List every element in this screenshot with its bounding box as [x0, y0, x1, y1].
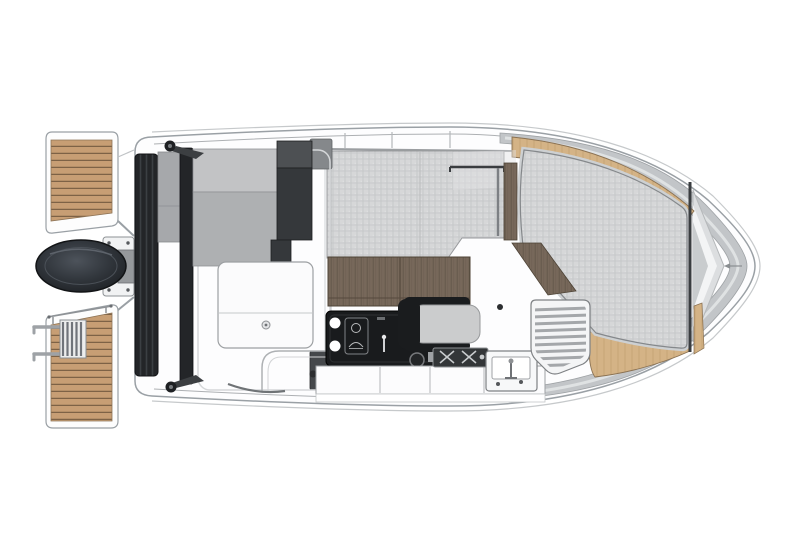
- seat-cushion: [412, 305, 480, 343]
- walnut-strip: [504, 163, 517, 240]
- cup-holder: [410, 353, 424, 367]
- wet-bar-sink: [486, 351, 537, 391]
- boat-deck-plan: [0, 0, 800, 533]
- sink-cupholder: [330, 341, 341, 352]
- swim-platform-bottom: [46, 297, 134, 428]
- boarding-ladder: [34, 320, 86, 360]
- bench-cushion-main: [193, 192, 277, 266]
- bench-bolster-upper: [277, 141, 312, 168]
- grill: [428, 348, 488, 367]
- cockpit-table: [218, 262, 313, 348]
- bench-side-panel: [158, 152, 180, 242]
- bench-front-rail: [180, 148, 193, 384]
- outboard-engine: [36, 237, 134, 296]
- swim-platform-top: [46, 132, 134, 236]
- bench-bolster: [277, 168, 312, 240]
- louvered-hatch: [531, 300, 590, 374]
- windshield-corner-top: [310, 139, 332, 169]
- seat-backrest: [398, 299, 420, 349]
- bench-cushion-top: [193, 149, 277, 192]
- sink-cupholder: [330, 318, 341, 329]
- caprail-sliver: [694, 303, 704, 354]
- helm-seat: [398, 297, 480, 351]
